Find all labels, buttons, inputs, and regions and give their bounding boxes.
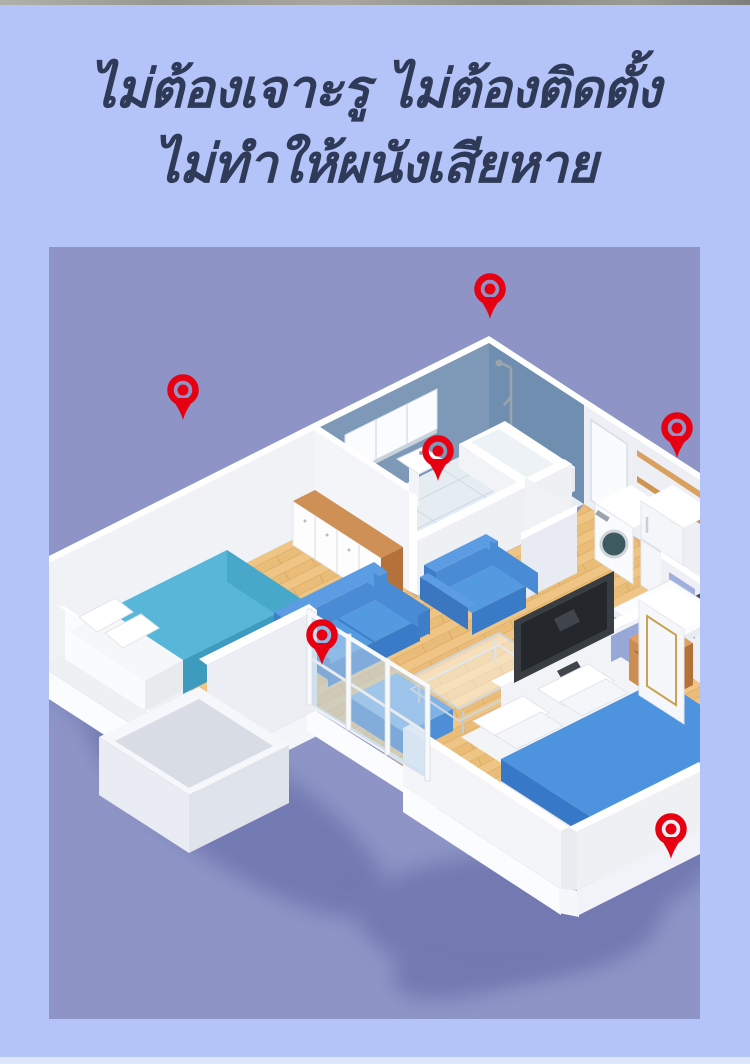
next-section-edge xyxy=(0,1057,750,1064)
floorplan-svg xyxy=(49,247,700,1019)
headline-line1: ไม่ต้องเจาะรู ไม่ต้องติดตั้ง xyxy=(0,52,750,127)
headline: ไม่ต้องเจาะรู ไม่ต้องติดตั้ง ไม่ทำให้ผนั… xyxy=(0,52,750,203)
previous-section-edge xyxy=(0,0,750,5)
headline-line2: ไม่ทำให้ผนังเสียหาย xyxy=(0,127,750,202)
apartment-floorplan-image xyxy=(49,247,700,1019)
